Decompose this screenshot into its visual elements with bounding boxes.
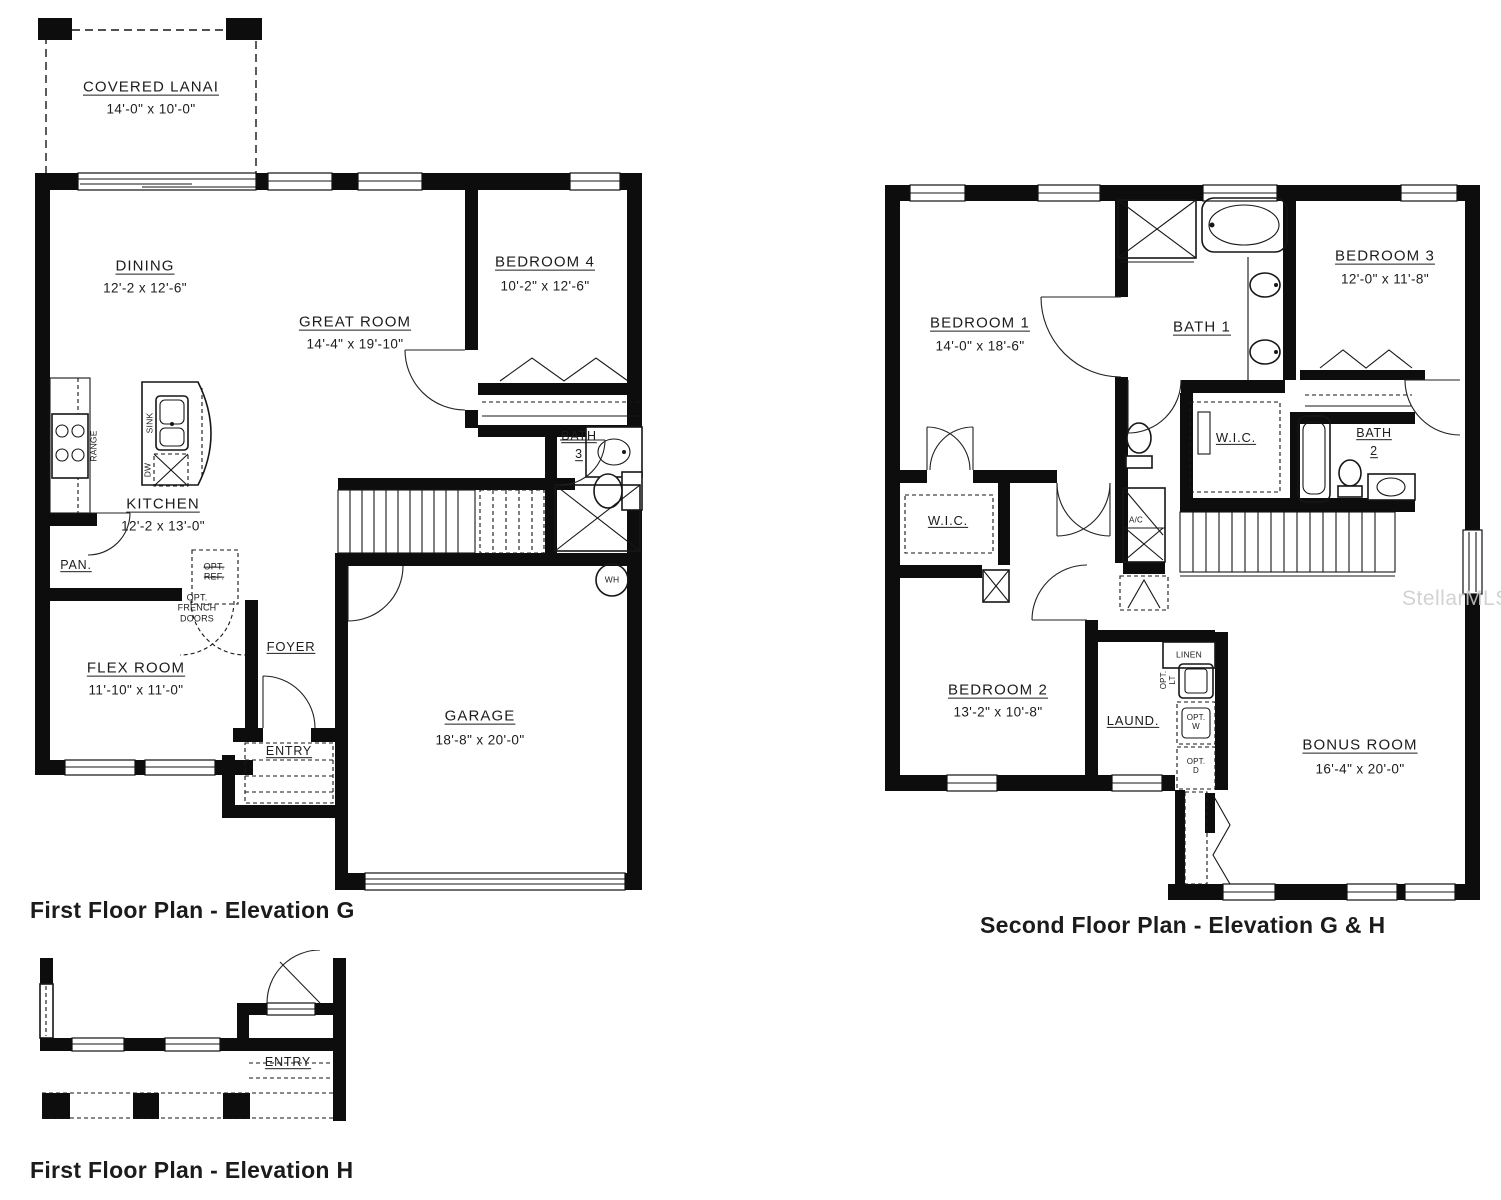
room-label-kitchen: KITCHEN (126, 496, 200, 515)
room-label-bath1: BATH 1 (1173, 319, 1231, 338)
opt-w-label: OPT. W (1187, 714, 1206, 732)
sink-label: SINK (145, 413, 154, 434)
second-floor-drawing (880, 180, 1501, 910)
hall-opt-door (1120, 576, 1168, 610)
second-floor-plan-gh: BEDROOM 1 14'-0" x 18'-6" BATH 1 BEDROOM… (880, 180, 1501, 910)
sink-icon (156, 396, 188, 450)
lanai-walls (38, 18, 262, 178)
dishwasher-icon (154, 454, 188, 486)
room-label-great-room: GREAT ROOM (299, 314, 411, 333)
stairs (338, 490, 544, 553)
opt-lt-label: OPT. LT (1160, 671, 1178, 690)
caption-first-floor-g: First Floor Plan - Elevation G (30, 897, 355, 924)
room-dims-bedroom1: 14'-0" x 18'-6" (935, 339, 1024, 356)
caption-first-floor-h: First Floor Plan - Elevation H (30, 1157, 353, 1184)
room-dims-flex-room: 11'-10" x 11'-0" (89, 683, 184, 700)
first-floor-plan-g: COVERED LANAI 14'-0" x 10'-0" DINING 12'… (30, 10, 650, 900)
room-dims-bedroom2: 13'-2" x 10'-8" (953, 705, 1042, 722)
range-icon (52, 414, 88, 478)
room-label-entry: ENTRY (266, 744, 312, 760)
room-label-laundry: LAUND. (1107, 713, 1159, 729)
hall-closet (983, 570, 1009, 602)
stairs (1180, 512, 1395, 576)
opt-french-doors-label: OPT. FRENCH DOORS (178, 592, 217, 623)
room-dims-bonus-room: 16'-4" x 20'-0" (1315, 762, 1404, 779)
room-label-bedroom1: BEDROOM 1 (930, 315, 1030, 334)
room-dims-dining: 12'-2 x 12'-6" (103, 281, 187, 298)
watermark: StellarMLS (1402, 587, 1501, 611)
garage-door (365, 873, 625, 890)
elevation-h-drawing (30, 950, 360, 1150)
room-label-bath3-number: 3 (575, 447, 583, 463)
bonus-corridor (1185, 792, 1230, 884)
room-label-entry-h: ENTRY (265, 1055, 311, 1071)
porch-steps (42, 1063, 333, 1118)
room-label-bath3: BATH (561, 429, 597, 445)
linen-label: LINEN (1176, 650, 1202, 659)
room-label-bath2: BATH (1356, 426, 1392, 442)
room-label-covered-lanai: COVERED LANAI (83, 79, 219, 98)
room-label-bedroom2: BEDROOM 2 (948, 682, 1048, 701)
room-label-flex-room: FLEX ROOM (87, 660, 185, 679)
first-floor-plan-h: ENTRY (30, 950, 360, 1150)
wic-master-outline (1190, 402, 1280, 492)
room-dims-bedroom4: 10'-2" x 12'-6" (500, 279, 589, 296)
tub-icon (1202, 198, 1287, 252)
caption-second-floor-gh: Second Floor Plan - Elevation G & H (980, 912, 1385, 939)
wh-label: WH (605, 575, 620, 584)
room-label-wic-master: W.I.C. (1216, 430, 1256, 446)
room-dims-great-room: 14'-4" x 19'-10" (307, 337, 404, 354)
floor-plan-sheet: COVERED LANAI 14'-0" x 10'-0" DINING 12'… (0, 0, 1501, 1200)
dw-label: DW (143, 463, 152, 478)
ac-label: A/C (1129, 517, 1143, 526)
entry-door (267, 950, 320, 1003)
room-label-garage: GARAGE (445, 708, 516, 727)
room-label-pantry: PAN. (60, 558, 91, 574)
shower-icon (1118, 200, 1196, 262)
range-label: RANGE (89, 430, 98, 461)
room-label-dining: DINING (115, 258, 174, 277)
room-label-wic2: W.I.C. (928, 513, 968, 529)
windows (910, 185, 1482, 900)
room-label-bonus-room: BONUS ROOM (1302, 737, 1417, 756)
room-label-bedroom3: BEDROOM 3 (1335, 248, 1435, 267)
first-floor-drawing (30, 10, 650, 900)
room-dims-kitchen: 12'-2 x 13'-0" (121, 519, 205, 536)
room-label-bath2-number: 2 (1370, 444, 1378, 460)
opt-d-label: OPT. D (1187, 758, 1206, 776)
room-label-bedroom4: BEDROOM 4 (495, 254, 595, 273)
room-dims-covered-lanai: 14'-0" x 10'-0" (106, 102, 195, 119)
room-label-foyer: FOYER (267, 639, 316, 655)
opt-ref-label: OPT. REF. (204, 562, 225, 583)
vanity-sinks (1248, 257, 1280, 380)
room-dims-garage: 18'-8" x 20'-0" (435, 733, 524, 750)
room-dims-bedroom3: 12'-0" x 11'-8" (1341, 272, 1429, 289)
